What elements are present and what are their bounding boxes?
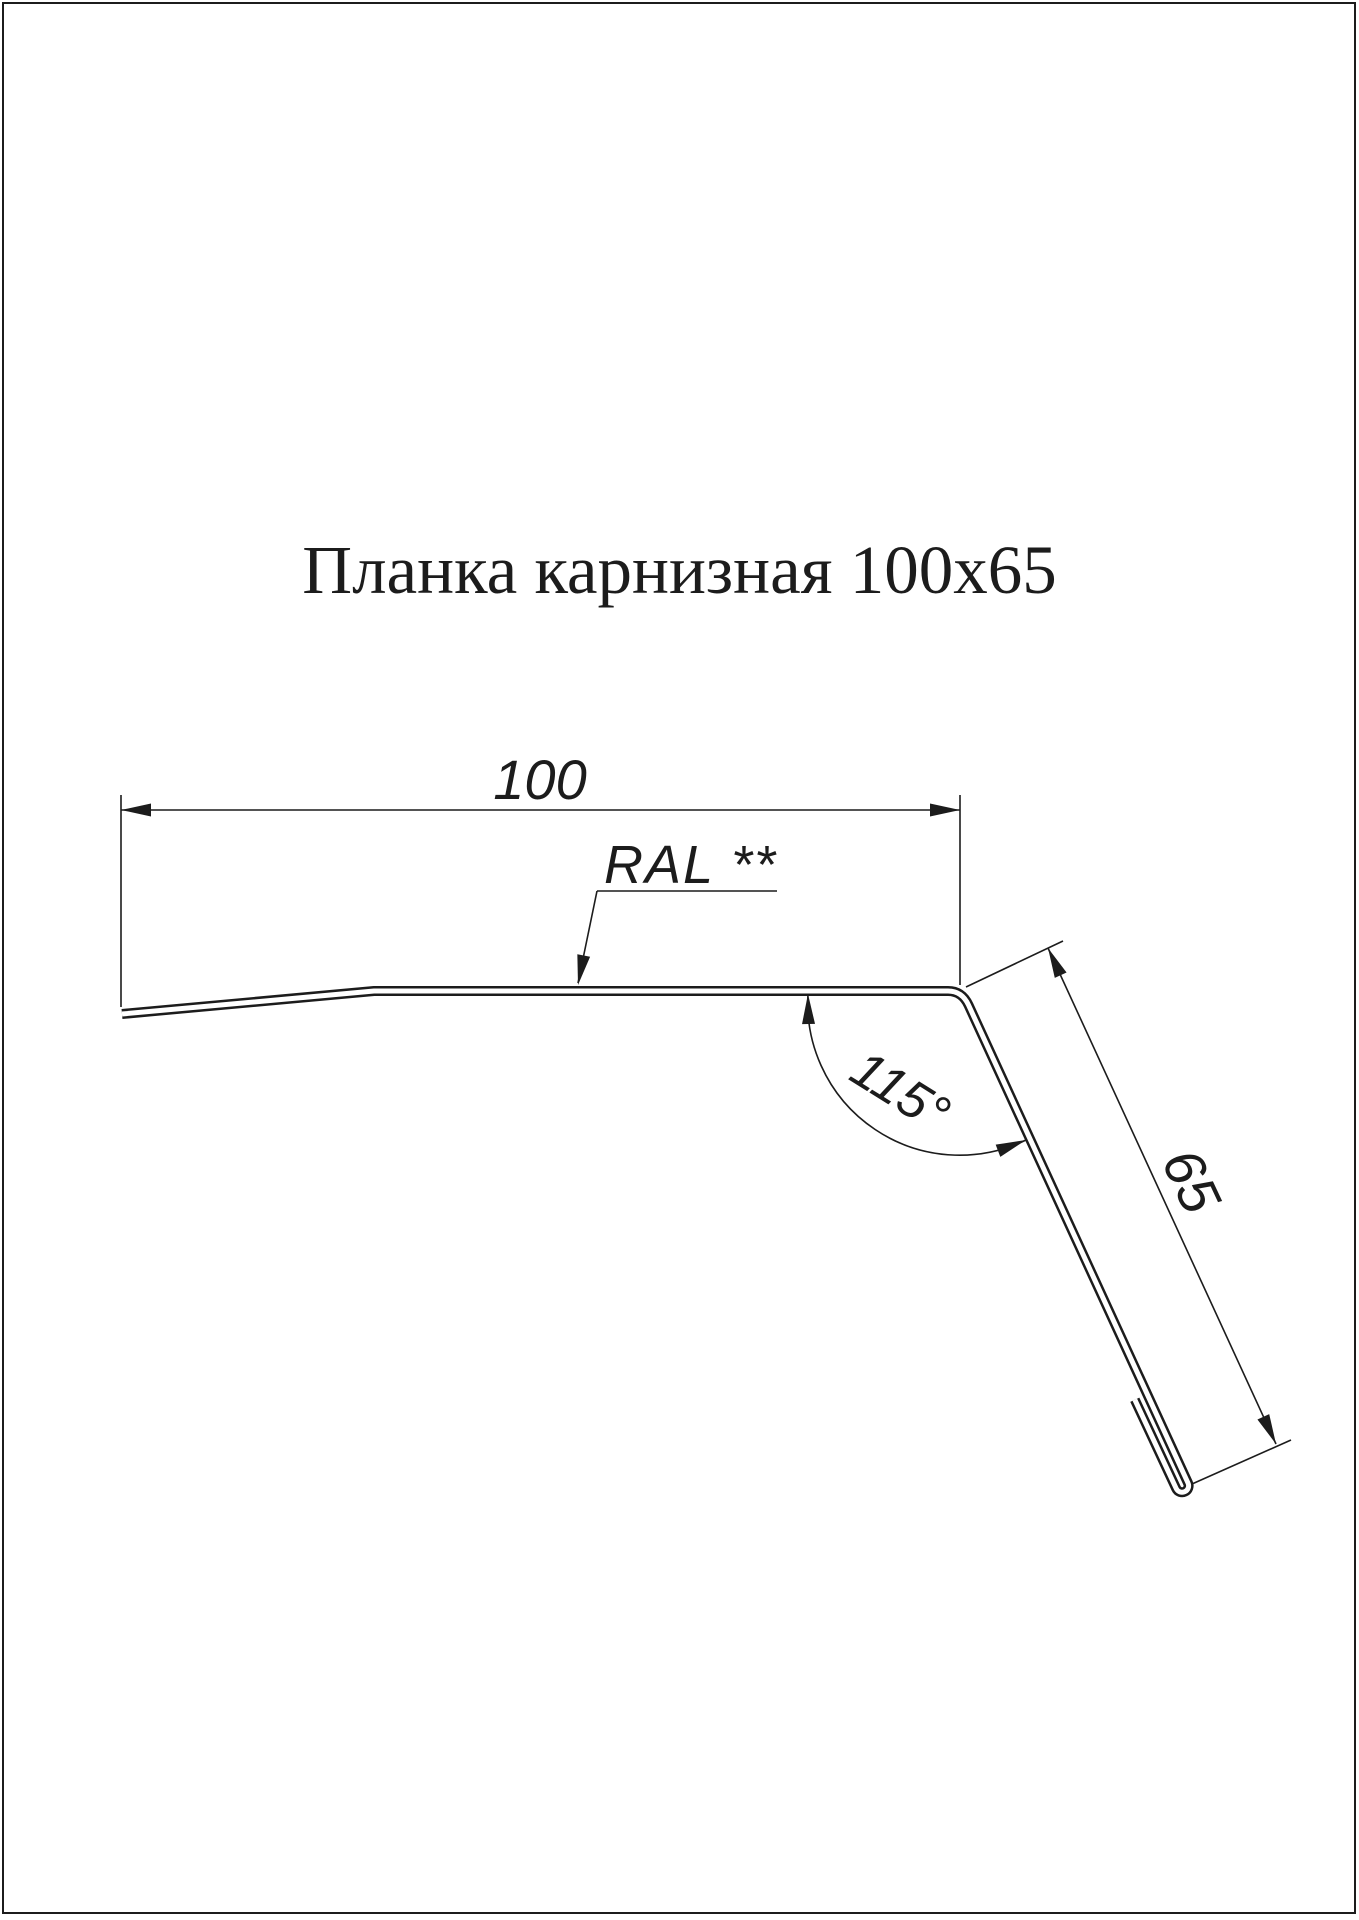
width-dimension: 100	[121, 748, 960, 1007]
width-arrow-right-icon	[930, 804, 960, 817]
height-arrow-top-icon	[1042, 945, 1066, 978]
angle-arrow-bottom-icon	[996, 1134, 1029, 1157]
ral-color-label: RAL **	[604, 835, 777, 895]
height-dimension-label: 65	[1150, 1139, 1234, 1223]
height-dimension-line	[1048, 948, 1276, 1444]
angle-arrow-top-icon	[802, 994, 816, 1024]
angle-dimension: 115°	[802, 994, 1029, 1157]
profile-sheet-outer-line	[122, 991, 1189, 1492]
profile-outline	[122, 991, 1189, 1492]
ral-leader-arrow-icon	[572, 954, 590, 986]
angle-dimension-label: 115°	[841, 1040, 960, 1144]
height-extension-line-bottom	[1192, 1440, 1291, 1484]
ral-leader: RAL **	[572, 835, 777, 986]
profile-drawing: 100 RAL ** 115° 65	[0, 0, 1359, 1920]
width-arrow-left-icon	[121, 804, 151, 817]
width-dimension-label: 100	[493, 748, 586, 811]
height-dimension: 65	[966, 941, 1291, 1484]
height-arrow-bottom-icon	[1257, 1414, 1281, 1447]
profile-sheet-inner-line	[122, 991, 1189, 1492]
drawing-page: Планка карнизная 100x65 100 RAL **	[0, 0, 1359, 1920]
